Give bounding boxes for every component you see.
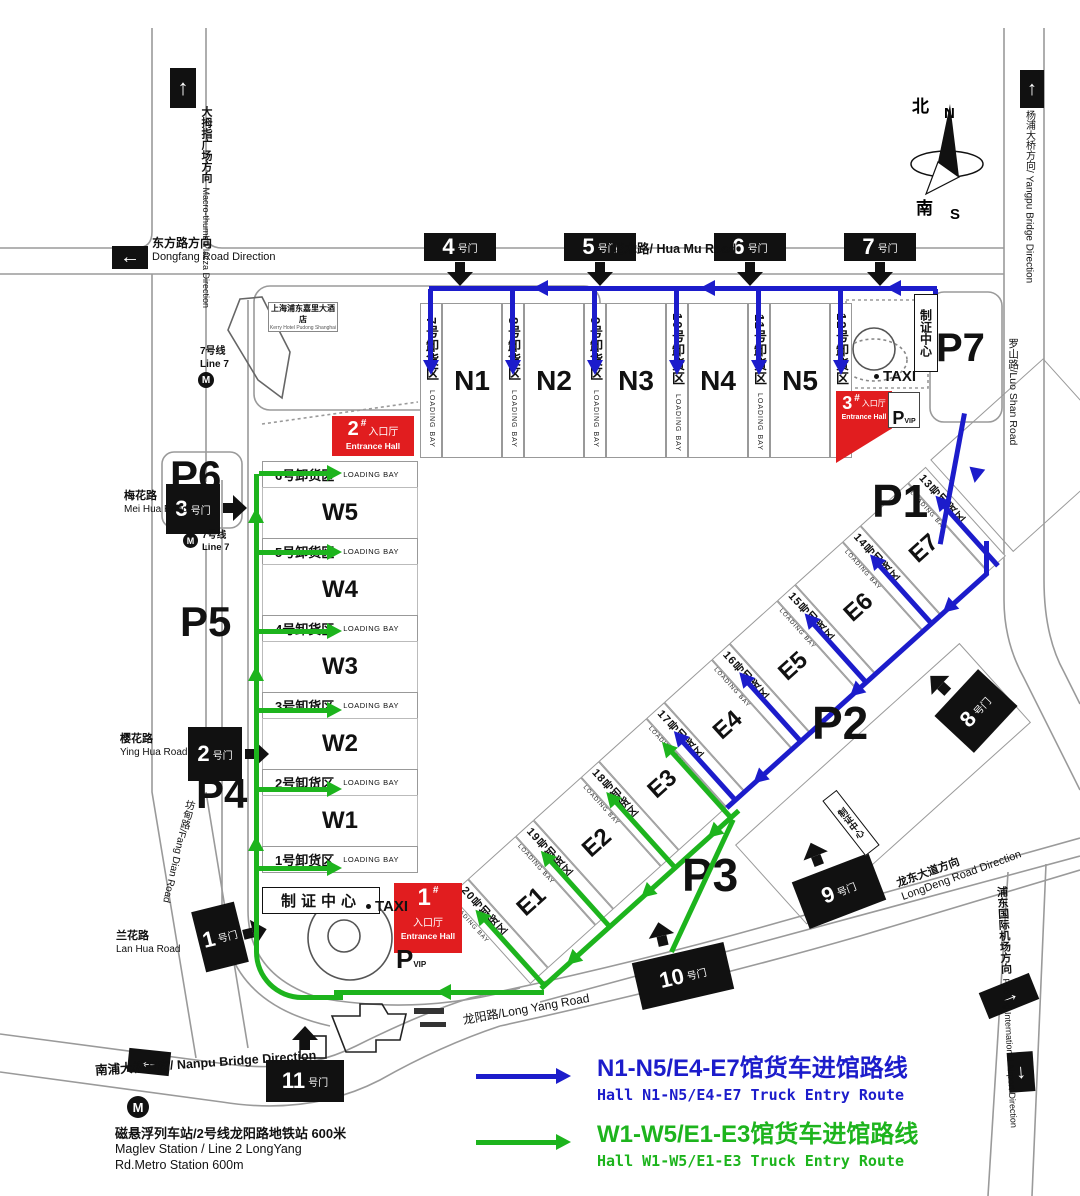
gate-number: 11 <box>282 1070 305 1092</box>
road-arrow-up-icon: ↑ <box>170 68 196 108</box>
green-branch-bay3 <box>259 708 329 713</box>
entrance-en: Entrance Hall <box>401 931 455 941</box>
hall-w2: W2 <box>262 718 418 770</box>
gate-number: 10 <box>657 965 686 992</box>
badge-center-north: 制证中心 <box>914 294 938 372</box>
road-en: Pudong International Airport Direction <box>1001 978 1019 1128</box>
taxi-dot-icon <box>874 374 879 379</box>
parking-p5: P5 <box>180 598 231 646</box>
blue-drop-bay7 <box>428 289 433 363</box>
compass-north-cn: 北 <box>912 97 929 116</box>
green-branch-bay6 <box>259 471 329 476</box>
hall-label: N5 <box>782 365 818 397</box>
bay-suffix: LOADING BAY <box>510 390 517 448</box>
compass-south-cn: 南 <box>916 198 933 218</box>
road-cn: 樱花路 <box>120 733 187 747</box>
gate-2: 2号门 <box>188 727 242 781</box>
legend-blue-arrow-icon <box>556 1068 571 1084</box>
road-arrow-up-icon: ↑ <box>1020 70 1044 108</box>
gate-suffix: 号门 <box>191 502 211 517</box>
green-branch-bay2 <box>259 787 329 792</box>
road-cn: 梅花路 <box>124 490 188 504</box>
green-branch-bay4 <box>259 629 329 634</box>
bay-suffix: LOADING BAY <box>428 390 435 448</box>
entrance-number: 3 <box>842 394 852 412</box>
legend-green-cn: W1-W5/E1-E3馆货车进馆路线 <box>597 1114 918 1149</box>
road-en: Ying Hua Road <box>120 747 187 760</box>
legend-green-arrow-icon <box>556 1134 571 1150</box>
badge-center-south: 制证中心 <box>262 887 380 914</box>
entrance-hall-2: 2#入口厅 Entrance Hall <box>332 416 414 456</box>
green-branch-bay1 <box>259 866 329 871</box>
gate-suffix: 号门 <box>458 240 478 255</box>
road-cn: 东方路方向 <box>152 236 276 251</box>
road-huamu: 花木路/ Hua Mu Road <box>612 242 736 258</box>
green-arrow <box>327 465 342 481</box>
taxi-dot-icon <box>366 904 371 909</box>
compass-south-en: S <box>950 206 960 223</box>
entrance-en: Entrance Hall <box>346 441 400 451</box>
blue-arrow <box>533 280 548 296</box>
hall-w1: W1 <box>262 795 418 847</box>
gate-number: 2 <box>197 743 209 765</box>
entrance-en: Entrance Hall <box>842 414 887 421</box>
gate-suffix: 号门 <box>213 747 233 762</box>
gate-number: 1 <box>200 928 217 952</box>
green-arrow <box>327 781 342 797</box>
hall-label: W5 <box>322 499 358 527</box>
road-en: Dongfang Road Direction <box>152 251 276 265</box>
blue-drop-bay8 <box>510 289 515 363</box>
entrance-hall-1: 1# 入口厅 Entrance Hall <box>394 883 462 953</box>
road-arrow-left-icon: ← <box>112 246 148 269</box>
parking-p7: P7 <box>936 326 985 371</box>
compass: 北 N 南 S <box>902 82 997 227</box>
line7-label-west: 7号线 Line 7 <box>202 530 229 554</box>
hotel-en: Kerry Hotel Pudong Shanghai <box>270 325 336 331</box>
hall-label: W4 <box>322 576 358 604</box>
entrance-cn: 入口厅 <box>862 398 886 409</box>
green-arrow <box>248 836 264 851</box>
west-halls-block: 6号卸货区LOADING BAY W5 5号卸货区LOADING BAY W4 … <box>262 462 418 873</box>
road-cn: 大拇指广场方向 <box>200 106 212 183</box>
hall-n5: N5 <box>770 303 830 458</box>
bay-suffix: LOADING BAY <box>343 778 399 787</box>
gate-7: 7号门 <box>844 233 916 261</box>
gate-6-arrow-icon <box>737 262 763 286</box>
hall-w5: W5 <box>262 487 418 539</box>
gate-4: 4号门 <box>424 233 496 261</box>
vip-sub: VIP <box>904 416 915 427</box>
blue-arrow <box>751 360 767 375</box>
bay-suffix: LOADING BAY <box>343 624 399 633</box>
gate-suffix: 号门 <box>216 925 239 944</box>
metro-glyph: M <box>133 1100 144 1115</box>
legend-blue-line <box>476 1074 558 1079</box>
gate-suffix: 号门 <box>878 240 898 255</box>
road-cn: 兰花路 <box>116 930 181 944</box>
hall-label: W1 <box>322 807 358 835</box>
hotel-cn: 上海浦东嘉里大酒店 <box>269 303 337 325</box>
blue-arrow <box>700 280 715 296</box>
line7-en: Line 7 <box>200 359 229 372</box>
bay-suffix: LOADING BAY <box>592 390 599 448</box>
green-arrow <box>327 623 342 639</box>
legend-green-line <box>476 1140 558 1145</box>
blue-arrow <box>505 360 521 375</box>
vip-sub: VIP <box>413 959 426 972</box>
line7-label-hotel: 7号线 Line 7 <box>200 346 229 371</box>
blue-drop-bay12 <box>838 289 843 363</box>
bay-suffix: LOADING BAY <box>674 394 681 452</box>
hall-n4: N4 <box>688 303 748 458</box>
road-meihua: 梅花路 Mei Hua Road <box>124 490 188 516</box>
road-lanhua: 兰花路 Lan Hua Road <box>116 930 181 956</box>
road-en: Mei Hua Road <box>124 504 188 517</box>
green-arrow <box>327 860 342 876</box>
maglev-cn: 磁悬浮列车站/2号线龙阳路地铁站 600米 <box>115 1126 346 1142</box>
maglev-en1: Maglev Station / Line 2 LongYang <box>115 1142 346 1158</box>
green-arrow <box>436 984 451 1000</box>
road-en: Lan Hua Road <box>116 944 181 957</box>
entrance-hash: # <box>433 886 439 896</box>
hall-label: N4 <box>700 365 736 397</box>
hall-label: N1 <box>454 365 490 397</box>
gate-3-arrow-icon <box>223 495 247 521</box>
road-yinghua: 樱花路 Ying Hua Road <box>120 733 187 759</box>
taxi-label: TAXI <box>375 898 408 915</box>
vip-parking-north: PVIP <box>888 392 920 428</box>
green-arrow <box>327 544 342 560</box>
gate-5-arrow-icon <box>587 262 613 286</box>
road-cn: 浦东国际机场方向 <box>995 886 1012 975</box>
entrance-cn: 入口厅 <box>413 914 443 929</box>
metro-icon: M <box>183 533 198 548</box>
metro-icon: M <box>198 372 214 388</box>
gate-suffix: 号门 <box>834 878 858 899</box>
bay-suffix: LOADING BAY <box>343 547 399 556</box>
blue-arrow <box>423 360 439 375</box>
blue-drop-bay9 <box>592 289 597 363</box>
green-branch-bay5 <box>259 550 329 555</box>
legend-blue-en: Hall N1-N5/E4-E7 Truck Entry Route <box>597 1086 904 1104</box>
line7-cn: 7号线 <box>202 530 229 542</box>
taxi-stand-north: TAXI <box>874 368 916 385</box>
gate-11-arrow-icon <box>292 1026 318 1050</box>
legend-blue-cn: N1-N5/E4-E7馆货车进馆路线 <box>597 1048 908 1083</box>
sniec-truck-route-map: 北 N 南 S 7号卸货区LOADING BAY N1 8号卸货区LOADING… <box>0 0 1080 1196</box>
road-dongfang: 东方路方向 Dongfang Road Direction <box>152 236 276 265</box>
road-yangpu: 杨浦大桥方向/ Yangpu Bridge Direction <box>1022 110 1035 345</box>
metro-glyph: M <box>187 536 195 546</box>
hall-n3: N3 <box>606 303 666 458</box>
parking-p1: P1 <box>872 474 928 528</box>
vip-p: P <box>396 946 413 972</box>
blue-route-top <box>429 286 937 291</box>
blue-drop-bay11 <box>756 289 761 363</box>
green-arrow <box>248 508 264 523</box>
vip-parking-south: PVIP <box>396 946 426 972</box>
maglev-note: 磁悬浮列车站/2号线龙阳路地铁站 600米 Maglev Station / L… <box>115 1126 346 1174</box>
hall-w3: W3 <box>262 641 418 693</box>
metro-icon: M <box>127 1096 149 1118</box>
entrance-hash: # <box>361 419 367 429</box>
hall-label: N3 <box>618 365 654 397</box>
blue-arrow <box>967 467 985 485</box>
legend-green-en: Hall W1-W5/E1-E3 Truck Entry Route <box>597 1152 904 1170</box>
blue-entry-link <box>984 541 989 575</box>
entrance-number: 2 <box>348 419 359 439</box>
bay-suffix: LOADING BAY <box>343 470 399 479</box>
vip-p: P <box>892 409 904 427</box>
gate-number: 7 <box>862 236 874 258</box>
blue-arrow <box>587 360 603 375</box>
hall-label: W2 <box>322 730 358 758</box>
maglev-en2: Rd.Metro Station 600m <box>115 1158 346 1174</box>
metro-glyph: M <box>202 375 210 386</box>
hall-w4: W4 <box>262 564 418 616</box>
line7-en: Line 7 <box>202 542 229 554</box>
blue-arrow <box>886 280 901 296</box>
blue-drop-bay10 <box>674 289 679 363</box>
gate-number: 4 <box>442 236 454 258</box>
hall-label: W3 <box>322 653 358 681</box>
blue-arrow <box>669 360 685 375</box>
hall-label: N2 <box>536 365 572 397</box>
green-route-west <box>254 474 259 933</box>
bay-suffix: LOADING BAY <box>756 393 763 451</box>
gate-suffix: 号门 <box>969 693 994 718</box>
road-luoshan: 罗山路/Luo Shan Road <box>1006 338 1019 473</box>
green-arrow <box>248 666 264 681</box>
entrance-hash: # <box>854 394 860 404</box>
parking-p2: P2 <box>812 696 868 750</box>
gate-4-arrow-icon <box>447 262 473 286</box>
gate-number: 5 <box>582 236 594 258</box>
hotel-kerry: 上海浦东嘉里大酒店 Kerry Hotel Pudong Shanghai <box>268 302 338 332</box>
bay-suffix: LOADING BAY <box>343 701 399 710</box>
taxi-label: TAXI <box>883 368 916 385</box>
hall-n1: N1 <box>442 303 502 458</box>
taxi-stand-south: TAXI <box>366 898 408 915</box>
blue-arrow <box>833 360 849 375</box>
north-halls-block: 7号卸货区LOADING BAY N1 8号卸货区LOADING BAY N2 … <box>420 303 852 458</box>
entrance-cn: 入口厅 <box>368 423 398 438</box>
bay-suffix: LOADING BAY <box>343 855 399 864</box>
gate-suffix: 号门 <box>308 1074 328 1089</box>
line7-cn: 7号线 <box>200 346 229 359</box>
entrance-number: 1 <box>418 886 431 910</box>
green-arrow <box>327 702 342 718</box>
gate-suffix: 号门 <box>685 963 708 982</box>
hall-n2: N2 <box>524 303 584 458</box>
gate-suffix: 号门 <box>748 240 768 255</box>
